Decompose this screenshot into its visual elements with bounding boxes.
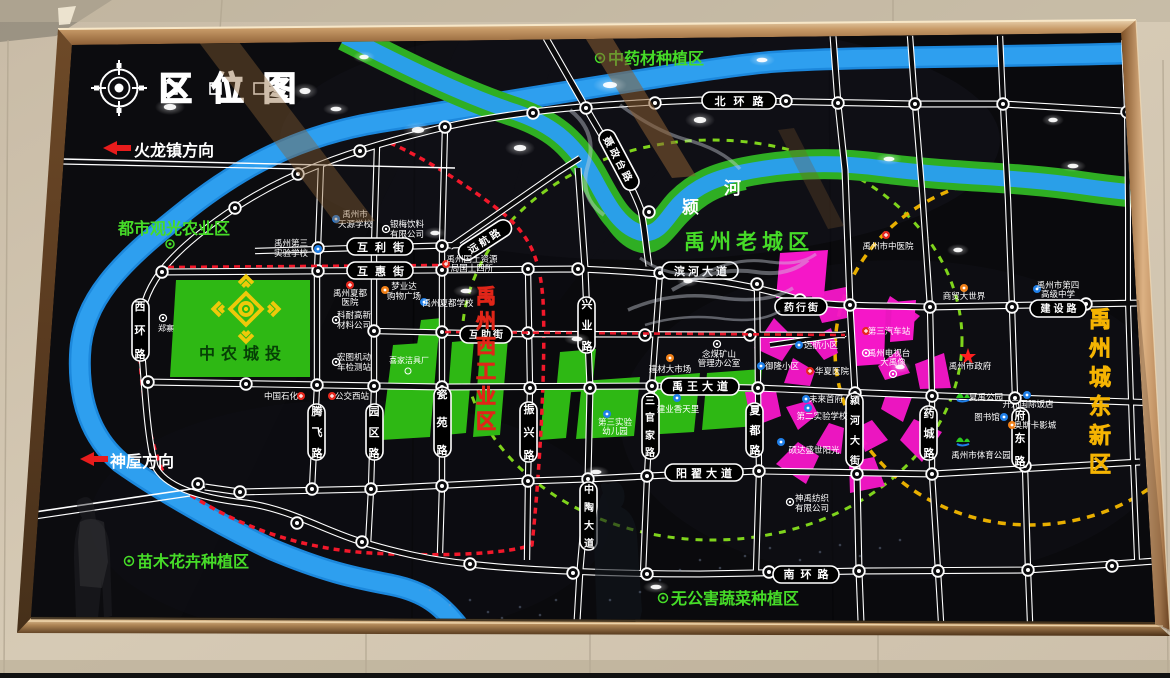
svg-text:新: 新 — [1089, 423, 1111, 448]
svg-text:州: 州 — [476, 310, 496, 333]
svg-text:东: 东 — [1089, 394, 1111, 419]
svg-text:夏禹公园: 夏禹公园 — [969, 392, 1003, 402]
svg-text:陶: 陶 — [584, 501, 594, 514]
svg-text:瓷: 瓷 — [437, 387, 448, 401]
svg-text:中国石化: 中国石化 — [264, 391, 299, 401]
svg-text:区: 区 — [476, 411, 496, 433]
svg-text:实验学校: 实验学校 — [274, 248, 309, 258]
svg-text:苗木花卉种植区: 苗木花卉种植区 — [137, 552, 249, 571]
svg-text:工: 工 — [476, 361, 496, 383]
svg-text:路: 路 — [312, 446, 324, 460]
svg-text:道: 道 — [584, 537, 594, 550]
svg-text:官: 官 — [645, 411, 655, 424]
svg-text:禹州市体育公园: 禹州市体育公园 — [951, 450, 1011, 460]
svg-text:神垕方向: 神垕方向 — [110, 452, 174, 471]
svg-text:路: 路 — [645, 446, 656, 459]
svg-text:禹州夏都学校: 禹州夏都学校 — [422, 298, 474, 308]
svg-text:建设路: 建设路 — [1040, 302, 1080, 315]
svg-text:环: 环 — [135, 324, 146, 337]
svg-text:家: 家 — [645, 429, 656, 442]
svg-text:宏图机动: 宏图机动 — [337, 352, 372, 362]
svg-text:夏: 夏 — [750, 404, 762, 417]
svg-text:建业香天里: 建业香天里 — [657, 404, 700, 414]
svg-text:局国土四所: 局国土四所 — [451, 263, 494, 273]
svg-text:路: 路 — [437, 443, 449, 457]
svg-text:街: 街 — [849, 454, 860, 467]
svg-text:郑寨: 郑寨 — [158, 323, 174, 333]
svg-text:开元国际饭店: 开元国际饭店 — [1002, 399, 1054, 409]
svg-text:商贸大世界: 商贸大世界 — [943, 291, 986, 301]
svg-text:业: 业 — [582, 318, 593, 332]
svg-text:图书馆: 图书馆 — [974, 412, 1000, 422]
svg-text:大: 大 — [584, 519, 594, 532]
svg-text:城: 城 — [924, 426, 935, 440]
svg-text:建材大市场: 建材大市场 — [649, 364, 692, 374]
svg-text:神禹纺织: 神禹纺织 — [795, 493, 829, 503]
svg-text:禹王大道: 禹王大道 — [672, 379, 732, 393]
svg-text:禹州老城区: 禹州老城区 — [684, 230, 814, 254]
svg-text:幼儿园: 幼儿园 — [602, 426, 628, 436]
svg-text:路: 路 — [1015, 454, 1027, 468]
svg-text:药行街: 药行街 — [784, 301, 820, 314]
svg-text:园: 园 — [369, 405, 380, 418]
svg-text:医院: 医院 — [341, 297, 359, 307]
svg-text:大: 大 — [850, 434, 860, 447]
svg-text:喜家洁具厂: 喜家洁具厂 — [389, 355, 429, 365]
svg-text:腾: 腾 — [312, 404, 324, 418]
svg-text:禹州市中医院: 禹州市中医院 — [862, 241, 914, 251]
svg-text:路: 路 — [135, 347, 147, 361]
svg-text:中农城投: 中农城投 — [199, 344, 287, 363]
svg-text:药: 药 — [924, 406, 935, 420]
svg-text:中: 中 — [584, 483, 594, 496]
svg-text:互利街: 互利街 — [357, 240, 411, 254]
svg-text:路: 路 — [369, 446, 381, 460]
svg-text:区: 区 — [1089, 452, 1111, 477]
svg-text:互惠街: 互惠街 — [357, 264, 411, 278]
svg-text:路: 路 — [750, 443, 762, 457]
svg-text:未来首府: 未来首府 — [809, 394, 844, 404]
svg-text:西: 西 — [476, 336, 496, 358]
svg-text:银梅饮料: 银梅饮料 — [390, 219, 425, 229]
svg-text:购物广场: 购物广场 — [387, 291, 421, 301]
svg-text:禹州第三: 禹州第三 — [274, 238, 308, 248]
svg-text:公交西站: 公交西站 — [335, 391, 370, 401]
svg-text:管理办公室: 管理办公室 — [698, 358, 741, 368]
svg-text:材料公司: 材料公司 — [337, 320, 371, 330]
svg-text:苑: 苑 — [436, 415, 448, 429]
svg-text:三: 三 — [645, 395, 655, 407]
svg-text:业: 业 — [476, 385, 496, 408]
svg-text:区: 区 — [369, 426, 380, 439]
svg-text:都: 都 — [749, 423, 761, 437]
svg-text:西: 西 — [135, 300, 146, 313]
svg-text:阳翟大道: 阳翟大道 — [676, 466, 736, 480]
svg-text:河: 河 — [724, 179, 741, 198]
svg-text:颍: 颍 — [849, 394, 860, 407]
svg-text:东: 东 — [1015, 431, 1026, 445]
svg-text:南环路: 南环路 — [784, 567, 835, 581]
svg-text:兴: 兴 — [524, 425, 535, 439]
svg-text:颍: 颍 — [682, 197, 699, 217]
svg-text:远航小区: 远航小区 — [804, 340, 839, 350]
svg-text:梦业达: 梦业达 — [391, 281, 417, 291]
svg-text:第三汽车站: 第三汽车站 — [868, 326, 911, 336]
svg-text:禹: 禹 — [476, 285, 496, 308]
svg-text:路: 路 — [924, 446, 936, 460]
svg-text:无公害蔬菜种植区: 无公害蔬菜种植区 — [670, 589, 799, 608]
svg-text:都市观光农业区: 都市观光农业区 — [117, 219, 230, 238]
svg-text:振: 振 — [524, 402, 535, 416]
svg-text:州: 州 — [1089, 336, 1111, 361]
svg-text:飞: 飞 — [312, 426, 323, 439]
svg-text:兴: 兴 — [582, 297, 593, 311]
svg-text:城: 城 — [1089, 365, 1111, 390]
svg-text:奥斯卡影城: 奥斯卡影城 — [1014, 420, 1057, 430]
svg-text:科耐高新: 科耐高新 — [337, 310, 372, 320]
svg-text:火龙镇方向: 火龙镇方向 — [134, 141, 214, 160]
svg-text:有限公司: 有限公司 — [795, 503, 829, 513]
svg-text:车检测站: 车检测站 — [337, 362, 372, 372]
svg-text:北环路: 北环路 — [715, 94, 772, 108]
svg-text:高级中学: 高级中学 — [1041, 289, 1076, 299]
svg-text:第二实验学校: 第二实验学校 — [796, 411, 848, 421]
svg-text:有限公司: 有限公司 — [390, 229, 424, 239]
svg-text:御隆小区: 御隆小区 — [765, 361, 800, 371]
svg-text:硕达盛世阳光: 硕达盛世阳光 — [788, 445, 840, 455]
svg-text:河: 河 — [850, 415, 860, 427]
svg-text:华夏医院: 华夏医院 — [815, 366, 850, 376]
svg-text:禹: 禹 — [1089, 307, 1111, 332]
svg-text:路: 路 — [524, 448, 536, 462]
svg-text:禹州市政府: 禹州市政府 — [949, 361, 992, 371]
